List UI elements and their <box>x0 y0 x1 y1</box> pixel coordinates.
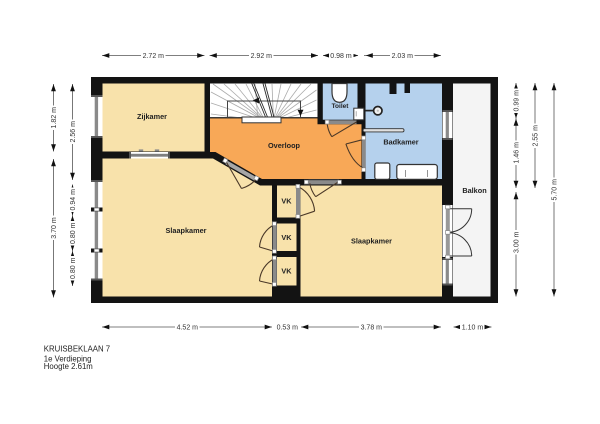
svg-text:VK: VK <box>281 267 292 276</box>
svg-text:2.03 m: 2.03 m <box>392 53 414 60</box>
svg-text:Hoogte 2.61m: Hoogte 2.61m <box>44 362 93 371</box>
svg-text:Badkamer: Badkamer <box>383 138 418 147</box>
svg-text:Balkon: Balkon <box>462 186 486 195</box>
svg-text:0.80 m: 0.80 m <box>70 222 77 244</box>
svg-text:1.10 m: 1.10 m <box>462 325 484 332</box>
svg-text:0.94 m: 0.94 m <box>70 189 77 211</box>
svg-text:Overloop: Overloop <box>268 141 301 150</box>
svg-text:5.70 m: 5.70 m <box>552 179 559 201</box>
svg-text:0.53 m: 0.53 m <box>277 325 299 332</box>
svg-text:VK: VK <box>281 197 292 206</box>
svg-text:Slaapkamer: Slaapkamer <box>166 226 207 235</box>
svg-text:4.52 m: 4.52 m <box>177 325 199 332</box>
svg-text:2.72 m: 2.72 m <box>143 53 165 60</box>
svg-text:0.98 m: 0.98 m <box>330 53 352 60</box>
svg-text:Zijkamer: Zijkamer <box>137 112 167 121</box>
svg-text:2.92 m: 2.92 m <box>251 53 273 60</box>
svg-text:Slaapkamer: Slaapkamer <box>351 236 392 245</box>
svg-text:2.55 m: 2.55 m <box>533 125 540 147</box>
svg-text:0.80 m: 0.80 m <box>70 257 77 279</box>
svg-text:0.99 m: 0.99 m <box>514 90 521 112</box>
svg-text:3.00 m: 3.00 m <box>514 231 521 253</box>
svg-text:Toilet: Toilet <box>332 103 350 110</box>
svg-text:3.70 m: 3.70 m <box>51 217 58 239</box>
svg-text:2.56 m: 2.56 m <box>70 121 77 143</box>
svg-text:1.82 m: 1.82 m <box>51 107 58 129</box>
svg-text:1.46 m: 1.46 m <box>514 142 521 164</box>
svg-text:KRUISBEKLAAN 7: KRUISBEKLAAN 7 <box>44 345 110 354</box>
svg-text:VK: VK <box>281 233 292 242</box>
svg-text:3.78 m: 3.78 m <box>361 325 383 332</box>
